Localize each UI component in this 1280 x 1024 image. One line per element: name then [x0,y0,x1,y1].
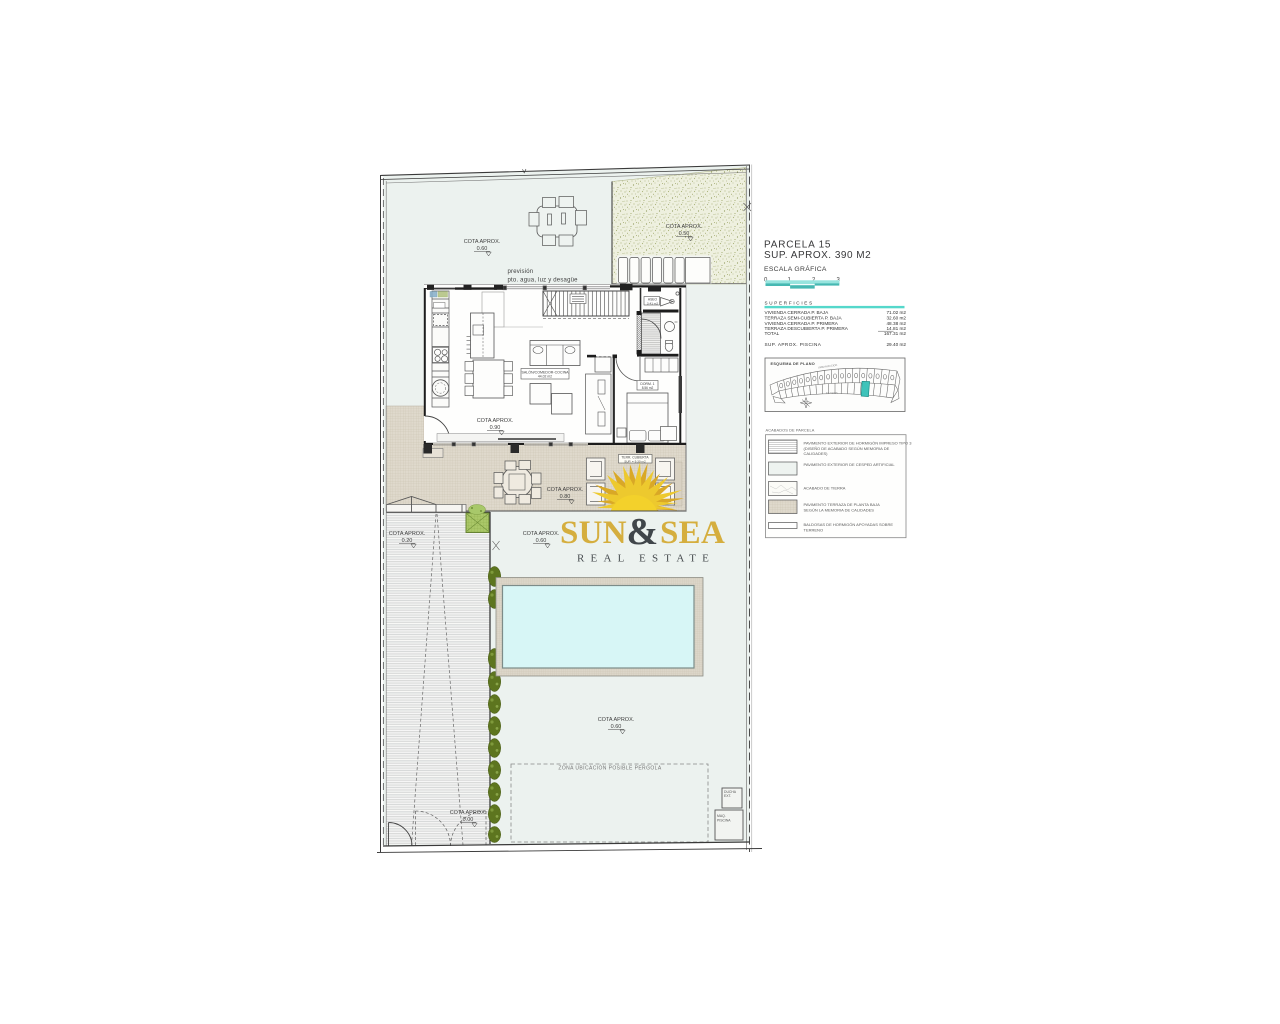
svg-text:MAQ.: MAQ. [717,814,726,818]
svg-text:EXT.: EXT. [724,794,731,798]
svg-text:COTA APROX.: COTA APROX. [598,717,635,723]
svg-text:SUN: SUN [560,515,627,551]
svg-text:SUP. APROX. PISCINA: SUP. APROX. PISCINA [765,342,822,347]
svg-text:167.31 m2: 167.31 m2 [884,331,907,336]
svg-text:8.56 m2: 8.56 m2 [642,386,654,390]
svg-text:SUP. APROX. 390 M2: SUP. APROX. 390 M2 [764,250,871,261]
svg-text:TERRENO: TERRENO [804,528,824,533]
svg-text:(DISEÑO DE ACABADO SEGÚN MEMOR: (DISEÑO DE ACABADO SEGÚN MEMORIA DE [804,446,890,451]
svg-text:SUP. = 9.30 m2: SUP. = 9.30 m2 [624,459,646,463]
svg-text:COTA APROX.: COTA APROX. [389,531,426,537]
svg-text:BALDOSAS DE HORMIGÓN APOYADAS: BALDOSAS DE HORMIGÓN APOYADAS SOBRE [804,522,894,527]
svg-text:PAVIMENTO EXTERIOR DE CESPED A: PAVIMENTO EXTERIOR DE CESPED ARTIFICIAL [804,462,896,467]
svg-text:SEGÚN LA MEMORIA DE CALIDADES: SEGÚN LA MEMORIA DE CALIDADES [804,508,875,513]
svg-text:COTA APROX.: COTA APROX. [666,224,703,230]
svg-text:COTA APROX.: COTA APROX. [523,531,560,537]
svg-text:VIVIENDA CERRADA P. BAJA: VIVIENDA CERRADA P. BAJA [765,310,830,315]
svg-text:SEA: SEA [660,515,725,551]
svg-text:PAVIMENTO EXTERIOR DE HORMIGÓN: PAVIMENTO EXTERIOR DE HORMIGÓN IMPRESO T… [804,440,913,445]
svg-text:CALIDADES): CALIDADES) [804,451,829,456]
svg-text:TOTAL: TOTAL [765,331,780,336]
svg-text:ZONA UBICACIÓN POSIBLE PÉRGOLA: ZONA UBICACIÓN POSIBLE PÉRGOLA [558,765,661,772]
svg-text:ACABADOS DE PARCELA: ACABADOS DE PARCELA [766,428,815,433]
svg-text:REAL ESTATE: REAL ESTATE [577,553,715,565]
svg-text:ACABADO DE TIERRA: ACABADO DE TIERRA [804,486,846,491]
svg-text:PAVIMENTO TERRAZA DE PLANTA BA: PAVIMENTO TERRAZA DE PLANTA BAJA [804,502,881,507]
svg-text:ESCALA GRÁFICA: ESCALA GRÁFICA [764,264,827,273]
svg-text:SUPERFICIES: SUPERFICIES [765,301,814,306]
svg-text:3.41 m2: 3.41 m2 [647,301,658,305]
svg-text:pto. agua, luz y desagüe: pto. agua, luz y desagüe [508,278,579,284]
svg-text:EL OASIS: EL OASIS [826,391,838,395]
svg-text:previsión: previsión [508,269,534,275]
svg-text:COTA APROX.: COTA APROX. [464,239,501,245]
svg-text:ESQUEMA DE PLANO: ESQUEMA DE PLANO [771,362,816,366]
svg-text:&: & [627,511,659,553]
svg-text:PARCELA 15: PARCELA 15 [764,240,831,251]
svg-text:PISCINA: PISCINA [717,819,731,823]
svg-text:44.02 m2: 44.02 m2 [538,375,552,379]
svg-text:COTA APROX.: COTA APROX. [547,487,584,493]
svg-text:COTA APROX.: COTA APROX. [477,418,514,424]
svg-text:71.02 m2: 71.02 m2 [886,310,906,315]
svg-text:SALÓN/COMEDOR-COCINA: SALÓN/COMEDOR-COCINA [521,369,569,374]
svg-text:COTA APROX.: COTA APROX. [450,810,487,816]
svg-text:29.40 m2: 29.40 m2 [886,342,906,347]
